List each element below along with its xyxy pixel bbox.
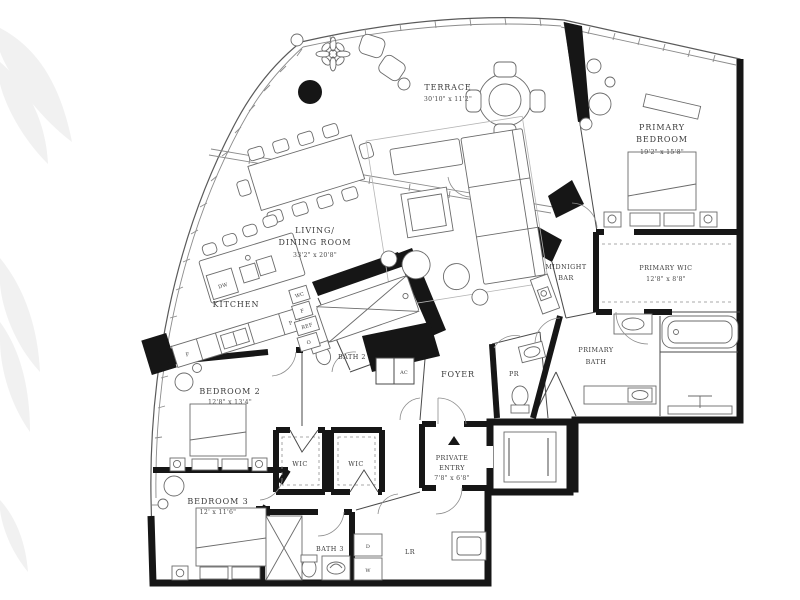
room-label-living-1: LIVING/ bbox=[295, 226, 335, 235]
room-label-midnight-bar-2: BAR bbox=[558, 274, 574, 282]
room-label-primary-bath-2: BATH bbox=[586, 358, 607, 366]
dryer-label: D bbox=[366, 544, 370, 550]
room-label-private-entry-2: ENTRY bbox=[439, 464, 465, 472]
elevator bbox=[485, 422, 570, 492]
room-label-kitchen: KITCHEN bbox=[213, 300, 260, 309]
ac-closet bbox=[376, 358, 414, 384]
room-label-bath2: BATH 2 bbox=[338, 353, 366, 361]
room-label-living-2: DINING ROOM bbox=[279, 238, 352, 247]
room-dims-bedroom2: 12'8" x 13'4" bbox=[208, 399, 252, 406]
room-label-primary-bath-1: PRIMARY bbox=[578, 346, 613, 354]
room-label-bath3: BATH 3 bbox=[316, 545, 344, 553]
room-label-primary-wic: PRIMARY WIC bbox=[639, 264, 692, 272]
room-dims-terrace: 30'10" x 11'2" bbox=[424, 96, 472, 103]
room-dims-living: 33'2" x 20'8" bbox=[293, 252, 337, 259]
structural-column bbox=[298, 80, 322, 104]
room-label-bedroom3: BEDROOM 3 bbox=[187, 497, 248, 506]
room-label-foyer: FOYER bbox=[441, 370, 475, 379]
room-label-pr: PR bbox=[509, 370, 519, 378]
room-label-lr: LR bbox=[405, 548, 415, 556]
palm-watermark bbox=[0, 28, 72, 572]
room-label-primary-bedroom-1: PRIMARY bbox=[639, 123, 685, 132]
floor-plan: DW F P WC F REF O bbox=[0, 0, 800, 600]
room-dims-primary-bedroom: 19'2" x 15'8" bbox=[640, 149, 684, 156]
room-label-bedroom2: BEDROOM 2 bbox=[199, 387, 260, 396]
room-label-private-entry-1: PRIVATE bbox=[436, 454, 469, 462]
room-dims-private-entry: 7'8" x 6'8" bbox=[434, 475, 470, 482]
room-label-ac: AC bbox=[399, 370, 408, 376]
room-label-primary-bedroom-2: BEDROOM bbox=[636, 135, 688, 144]
room-dims-primary-wic: 12'8" x 8'8" bbox=[646, 276, 686, 283]
room-label-wic-a: WIC bbox=[292, 460, 307, 468]
room-label-midnight-bar-1: MIDNIGHT bbox=[545, 263, 586, 271]
toilet bbox=[512, 386, 528, 406]
room-dims-bedroom3: 12' x 11'6" bbox=[200, 509, 237, 516]
room-label-wic-b: WIC bbox=[348, 460, 363, 468]
washer-label: W bbox=[365, 568, 371, 574]
floor-plan-page: DW F P WC F REF O bbox=[0, 0, 800, 600]
room-label-terrace: TERRACE bbox=[424, 83, 471, 92]
